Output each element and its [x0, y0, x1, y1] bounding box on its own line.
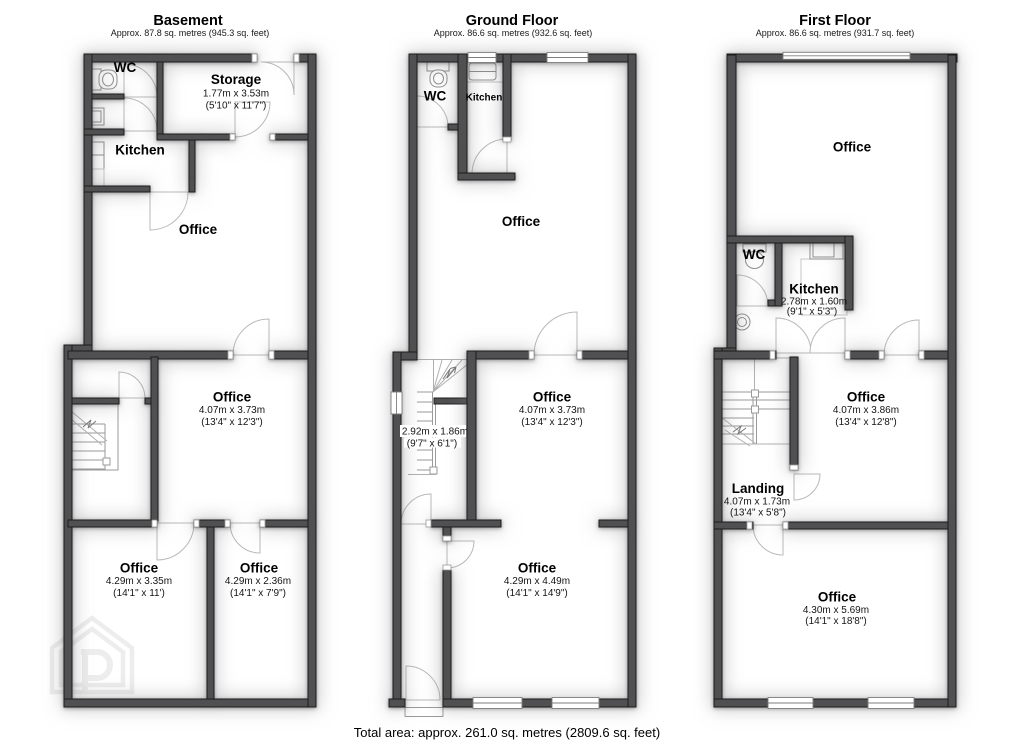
svg-text:Total area: approx. 261.0 sq.: Total area: approx. 261.0 sq. metres (28… — [354, 725, 660, 740]
svg-text:4.29m x 2.36m: 4.29m x 2.36m — [225, 576, 291, 587]
svg-text:(14'1" x 7'9"): (14'1" x 7'9") — [230, 588, 286, 599]
svg-text:(13'4" x 12'3"): (13'4" x 12'3") — [521, 417, 583, 428]
svg-text:Office: Office — [502, 214, 541, 229]
svg-text:Office: Office — [179, 222, 218, 237]
svg-text:4.07m x 3.86m: 4.07m x 3.86m — [833, 405, 899, 416]
svg-text:1.77m x 3.53m: 1.77m x 3.53m — [203, 89, 269, 100]
svg-text:4.07m x 3.73m: 4.07m x 3.73m — [199, 405, 265, 416]
svg-text:Kitchen: Kitchen — [115, 143, 165, 158]
svg-text:(5'10" x 11'7"): (5'10" x 11'7") — [206, 101, 267, 112]
svg-text:Storage: Storage — [211, 72, 262, 87]
svg-text:2.92m x 1.86m: 2.92m x 1.86m — [402, 427, 468, 438]
svg-text:(13'4" x 5'8"): (13'4" x 5'8") — [730, 508, 786, 519]
svg-text:(9'7" x 6'1"): (9'7" x 6'1") — [407, 439, 457, 450]
svg-text:Kitchen: Kitchen — [466, 93, 503, 104]
svg-text:(9'1" x 5'3"): (9'1" x 5'3") — [787, 307, 837, 318]
svg-text:Office: Office — [240, 561, 279, 576]
svg-text:Office: Office — [533, 390, 572, 405]
svg-text:Kitchen: Kitchen — [789, 282, 839, 297]
svg-text:WC: WC — [424, 89, 447, 104]
svg-text:Office: Office — [213, 390, 252, 405]
svg-text:4.29m x 4.49m: 4.29m x 4.49m — [504, 576, 570, 587]
svg-text:Approx. 87.8 sq. metres (945.3: Approx. 87.8 sq. metres (945.3 sq. feet) — [111, 28, 270, 38]
svg-text:Office: Office — [818, 590, 857, 605]
svg-text:First Floor: First Floor — [799, 13, 871, 29]
svg-text:4.07m x 1.73m: 4.07m x 1.73m — [724, 497, 790, 508]
svg-text:Approx. 86.6 sq. metres (931.7: Approx. 86.6 sq. metres (931.7 sq. feet) — [756, 28, 915, 38]
svg-text:Office: Office — [847, 390, 886, 405]
svg-text:Ground Floor: Ground Floor — [466, 13, 559, 29]
svg-text:Landing: Landing — [732, 481, 785, 496]
svg-text:(13'4" x 12'8"): (13'4" x 12'8") — [835, 417, 897, 428]
svg-text:Office: Office — [833, 140, 872, 155]
svg-text:(14'1" x 11'): (14'1" x 11') — [113, 588, 165, 599]
svg-text:4.29m x 3.35m: 4.29m x 3.35m — [106, 576, 172, 587]
svg-text:4.07m x 3.73m: 4.07m x 3.73m — [519, 405, 585, 416]
svg-text:Basement: Basement — [153, 13, 222, 29]
svg-text:4.30m x 5.69m: 4.30m x 5.69m — [803, 605, 869, 616]
svg-text:(14'1" x 14'9"): (14'1" x 14'9") — [506, 588, 568, 599]
svg-text:Office: Office — [518, 561, 557, 576]
svg-text:WC: WC — [743, 247, 766, 262]
svg-text:(14'1" x 18'8"): (14'1" x 18'8") — [805, 616, 867, 627]
svg-text:(13'4" x 12'3"): (13'4" x 12'3") — [201, 417, 263, 428]
svg-text:Office: Office — [120, 561, 159, 576]
svg-text:Approx. 86.6 sq. metres (932.6: Approx. 86.6 sq. metres (932.6 sq. feet) — [434, 28, 593, 38]
svg-text:WC: WC — [114, 60, 137, 75]
